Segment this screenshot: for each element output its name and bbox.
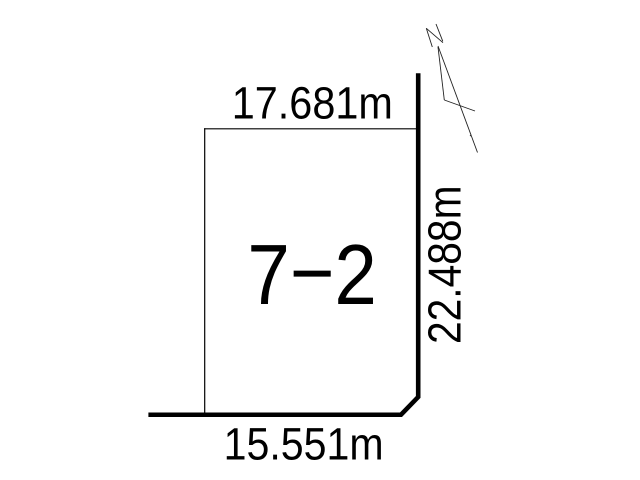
svg-text:15.551m: 15.551m (224, 419, 384, 470)
svg-text:22.488m: 22.488m (418, 186, 470, 345)
svg-text:7−2: 7−2 (247, 226, 376, 323)
svg-text:17.681m: 17.681m (232, 77, 393, 128)
